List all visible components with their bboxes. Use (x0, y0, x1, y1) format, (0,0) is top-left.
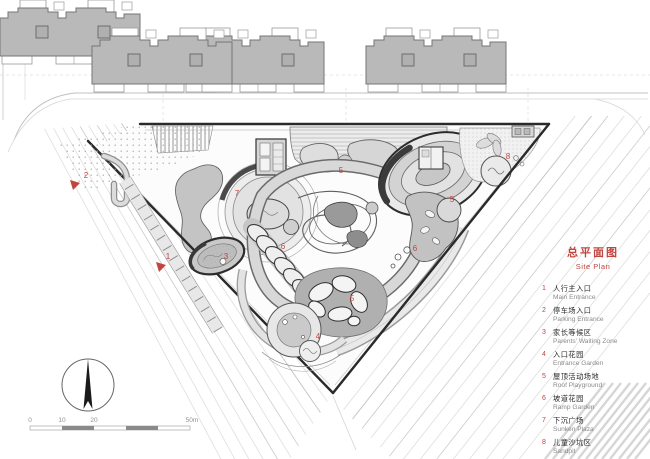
plan-marker-3: 3 (224, 253, 228, 261)
north-arrow-icon (62, 359, 114, 411)
scale-label-50m: 50m (186, 417, 199, 424)
legend-item-en: Entrance Garden (553, 360, 644, 368)
legend-title-zh: 总平面图 (542, 244, 644, 260)
plan-marker-5c: 5 (350, 295, 354, 303)
legend-item-1: 1 人行主入口 Main Entrance (542, 285, 644, 302)
utility-box (512, 126, 534, 137)
legend-item-7: 7 下沉广场 Sunken Plaza (542, 417, 644, 434)
plan-marker-1: 1 (166, 253, 170, 261)
legend-item-en: Parking Entrance (553, 316, 644, 324)
legend-item-en: Sandpit (553, 448, 644, 456)
scale-label-10: 10 (58, 417, 65, 424)
plan-marker-7: 7 (235, 190, 239, 198)
plan-marker-5a: 5 (339, 167, 343, 175)
legend-item-en: Roof Playground (553, 382, 644, 390)
legend-item-zh: 儿童沙坑区 (553, 439, 644, 447)
legend-item-num: 5 (542, 373, 546, 381)
legend-item-zh: 入口花园 (553, 351, 644, 359)
residential-buildings (0, 0, 506, 92)
legend-item-num: 7 (542, 417, 546, 425)
crosswalk (152, 126, 213, 153)
legend-item-num: 2 (542, 307, 546, 315)
scale-bar (30, 426, 190, 430)
plan-marker-6b: 6 (413, 245, 417, 253)
legend-title-en: Site Plan (542, 262, 644, 271)
legend-item-en: Parents' Waiting Zone (553, 338, 644, 346)
legend-item-num: 8 (542, 439, 546, 447)
plan-marker-4: 4 (316, 333, 320, 341)
building-3 (366, 28, 506, 92)
legend-item-zh: 下沉广场 (553, 417, 644, 425)
legend: 总平面图 Site Plan 1 人行主入口 Main Entrance 2 停… (542, 244, 644, 459)
plan-marker-6a: 6 (281, 243, 285, 251)
legend-item-zh: 停车场入口 (553, 307, 644, 315)
legend-item-zh: 坡道花园 (553, 395, 644, 403)
legend-item-2: 2 停车场入口 Parking Entrance (542, 307, 644, 324)
legend-item-num: 6 (542, 395, 546, 403)
legend-item-en: Main Entrance (553, 294, 644, 302)
legend-item-4: 4 入口花园 Entrance Garden (542, 351, 644, 368)
legend-item-8: 8 儿童沙坑区 Sandpit (542, 439, 644, 456)
legend-item-num: 3 (542, 329, 546, 337)
legend-item-zh: 家长等候区 (553, 329, 644, 337)
scale-label-0: 0 (28, 417, 32, 424)
legend-item-num: 4 (542, 351, 546, 359)
site-plan-sheet: 2 1 3 7 5 5 5 6 6 4 8 0 10 20 50m 总平面图 S… (0, 0, 650, 459)
legend-item-5: 5 屋顶活动场地 Roof Playground (542, 373, 644, 390)
legend-item-3: 3 家长等候区 Parents' Waiting Zone (542, 329, 644, 346)
plan-marker-2: 2 (84, 172, 88, 180)
legend-item-en: Sunken Plaza (553, 426, 644, 434)
plan-marker-8: 8 (506, 153, 510, 161)
legend-item-6: 6 坡道花园 Ramp Garden (542, 395, 644, 412)
legend-item-en: Ramp Garden (553, 404, 644, 412)
scale-label-20: 20 (90, 417, 97, 424)
legend-list: 1 人行主入口 Main Entrance 2 停车场入口 Parking En… (542, 285, 644, 456)
legend-item-num: 1 (542, 285, 546, 293)
legend-item-zh: 人行主入口 (553, 285, 644, 293)
plan-marker-5b: 5 (450, 196, 454, 204)
legend-item-zh: 屋顶活动场地 (553, 373, 644, 381)
stair-core-building (256, 139, 286, 175)
